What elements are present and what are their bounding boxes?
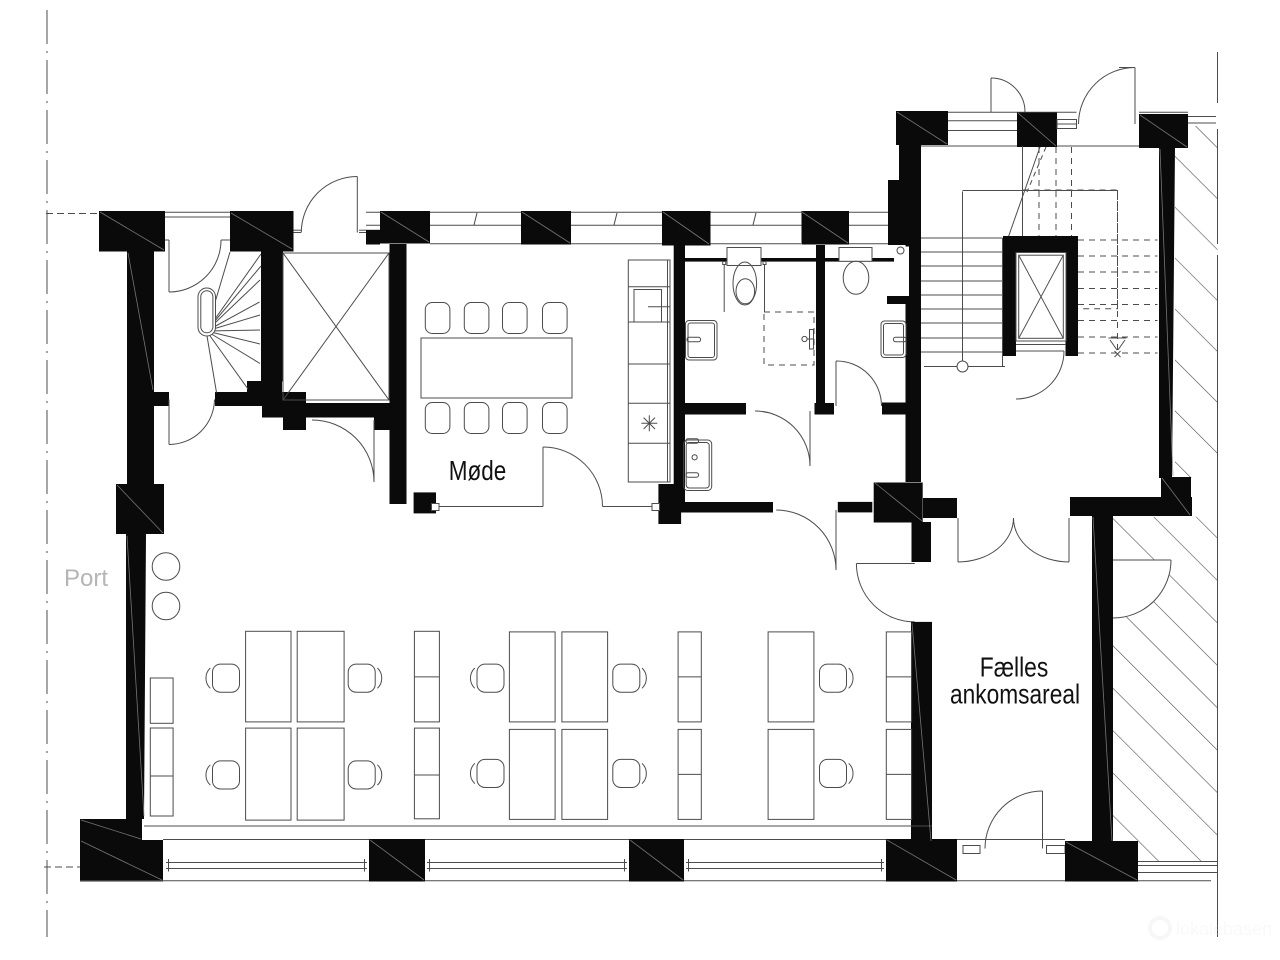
- svg-text:lokalebasen: lokalebasen: [1176, 919, 1272, 939]
- svg-text:Møde: Møde: [449, 455, 507, 486]
- svg-text:Port: Port: [64, 565, 108, 592]
- svg-text:ankomsareal: ankomsareal: [950, 679, 1080, 710]
